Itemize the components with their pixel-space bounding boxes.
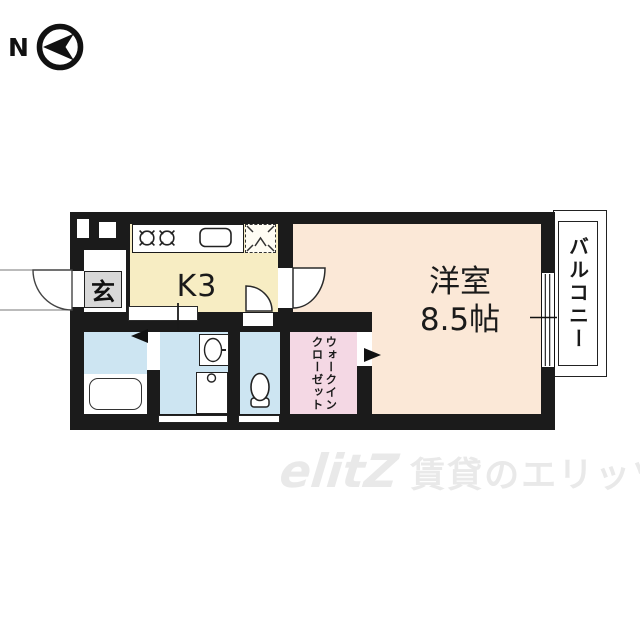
room-name: 洋室 — [375, 264, 545, 302]
closet-label-line2: クローゼット — [310, 336, 324, 411]
bath-door-opening — [147, 332, 160, 370]
interior-wall — [293, 312, 372, 332]
room-door-opening — [278, 268, 293, 308]
walkin-closet-label: ウォークイン クローゼット — [310, 336, 338, 411]
meter-box-slot — [77, 219, 89, 238]
bathtub-icon — [89, 378, 142, 410]
toilet-room — [240, 332, 280, 414]
watermark-text: 賃貸のエリッツ — [410, 447, 640, 498]
kitchen-label: K3 — [160, 269, 234, 304]
meter-box-slot — [99, 222, 116, 238]
toilet-window — [238, 415, 280, 423]
north-label: N — [8, 33, 29, 62]
walkin-closet-room: ウォークイン クローゼット — [290, 332, 357, 414]
genkan-room: 玄 — [84, 271, 122, 308]
room-size: 8.5帖 — [375, 302, 545, 340]
balcony-area: バルコニー — [558, 221, 598, 366]
entrance-door-opening — [70, 271, 84, 307]
watermark: elitZ 賃貸のエリッツ — [280, 444, 640, 498]
washroom-doorway — [128, 306, 198, 321]
kitchen-counter — [132, 224, 244, 253]
western-room-label: 洋室 8.5帖 — [375, 264, 545, 340]
north-compass-icon — [40, 27, 81, 68]
washing-machine-pan-icon — [196, 372, 228, 414]
closet-door-opening — [357, 332, 372, 366]
washbasin-unit — [199, 334, 229, 366]
entrance-door-swing-icon — [33, 270, 72, 310]
toilet-doorway — [243, 313, 273, 326]
washroom-window — [158, 415, 228, 423]
balcony-sliding-window — [541, 273, 555, 367]
closet-label-line1: ウォークイン — [324, 336, 338, 411]
watermark-logo: elitZ — [277, 444, 401, 498]
balcony-label: バルコニー — [564, 236, 593, 351]
refrigerator-space-icon — [245, 224, 276, 253]
floorplan-canvas: N バルコニー 玄 K3 洋室 8.5帖 ウォークイン クローゼット — [0, 0, 640, 640]
